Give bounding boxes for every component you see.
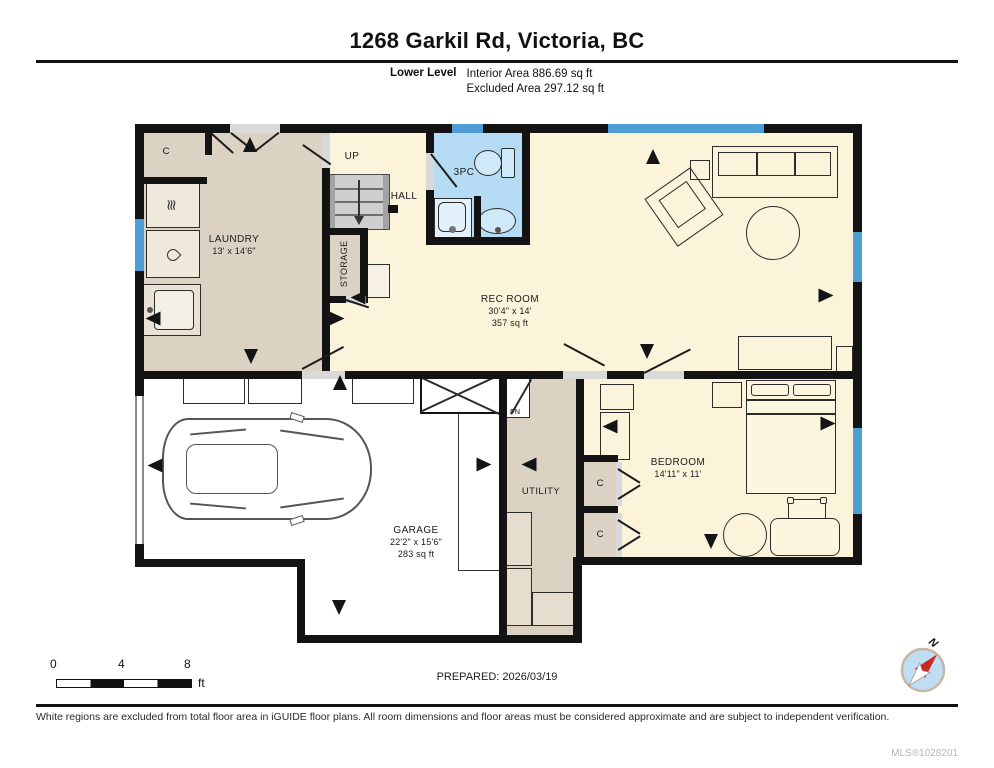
desk bbox=[770, 518, 840, 556]
hall-nook bbox=[366, 264, 390, 298]
pillow bbox=[751, 384, 789, 396]
water-heater bbox=[504, 512, 532, 566]
camera-arrow-icon bbox=[603, 420, 618, 434]
camera-arrow-icon bbox=[522, 458, 537, 472]
wall-segment bbox=[426, 133, 434, 153]
camera-arrow-icon bbox=[332, 600, 346, 615]
garage-shelf bbox=[352, 378, 414, 404]
garage-door bbox=[135, 396, 144, 544]
dryer: ≋ bbox=[146, 182, 200, 228]
utility-label: UTILITY bbox=[505, 486, 577, 498]
shower bbox=[434, 198, 472, 238]
storage-label: STORAGE bbox=[339, 234, 351, 294]
bathroom-sink bbox=[478, 208, 516, 234]
scale-tick-4: 4 bbox=[118, 657, 125, 671]
window bbox=[608, 124, 764, 133]
wall-segment bbox=[322, 296, 346, 303]
door-opening bbox=[644, 371, 684, 379]
wall-segment bbox=[345, 371, 563, 379]
closet-label: C bbox=[592, 478, 608, 489]
wall-segment bbox=[474, 196, 481, 245]
wall-segment bbox=[576, 557, 862, 565]
wall-segment bbox=[576, 506, 618, 513]
wall-segment bbox=[573, 557, 582, 643]
round-table bbox=[746, 206, 800, 260]
compass-icon bbox=[896, 643, 950, 697]
camera-arrow-icon bbox=[646, 149, 660, 164]
window bbox=[135, 219, 144, 271]
wall-segment bbox=[297, 559, 305, 643]
bathroom-label: 3PC bbox=[444, 166, 484, 179]
camera-arrow-icon bbox=[821, 417, 836, 431]
pillow bbox=[793, 384, 831, 396]
sofa bbox=[712, 146, 838, 198]
wall-segment bbox=[576, 371, 584, 559]
prepared-date: PREPARED: 2026/03/19 bbox=[0, 671, 994, 683]
wall-segment bbox=[388, 205, 398, 213]
camera-arrow-icon bbox=[477, 458, 492, 472]
disclaimer-text: White regions are excluded from total fl… bbox=[36, 711, 958, 723]
shower-drain-icon bbox=[449, 226, 456, 233]
furnace: FN bbox=[506, 376, 530, 418]
excluded-region-marker bbox=[420, 374, 502, 414]
hall-label: HALL bbox=[380, 190, 428, 203]
garage-shelf bbox=[183, 378, 245, 404]
door-opening bbox=[230, 124, 280, 133]
window bbox=[853, 232, 862, 282]
camera-arrow-icon bbox=[244, 349, 258, 364]
wall-segment bbox=[297, 635, 582, 643]
wall-segment bbox=[607, 371, 644, 379]
water-heater bbox=[504, 568, 532, 626]
stair-down-arrow-icon bbox=[354, 216, 364, 225]
closet-label: C bbox=[158, 146, 174, 157]
floor-plan-page: 1268 Garkil Rd, Victoria, BC Lower Level… bbox=[0, 0, 994, 768]
car bbox=[162, 418, 372, 520]
wall-segment bbox=[135, 371, 302, 379]
nightstand bbox=[712, 382, 742, 408]
rec-room-label: REC ROOM30'4" x 14'357 sq ft bbox=[430, 293, 590, 329]
camera-arrow-icon bbox=[243, 137, 257, 152]
garage-label: GARAGE22'2" x 15'6"283 sq ft bbox=[336, 524, 496, 560]
footer-divider bbox=[36, 704, 958, 707]
laundry-sink bbox=[143, 284, 201, 336]
garage-floor-lower bbox=[300, 563, 503, 639]
ottoman bbox=[723, 513, 767, 557]
window bbox=[853, 428, 862, 514]
camera-arrow-icon bbox=[640, 344, 654, 359]
up-label: UP bbox=[336, 150, 368, 163]
mls-number: MLS®1028201 bbox=[700, 748, 958, 759]
laundry-label: LAUNDRY13' x 14'6" bbox=[154, 233, 314, 258]
sofa-side-table bbox=[690, 160, 710, 180]
furnace-label: FN bbox=[510, 407, 520, 416]
camera-arrow-icon bbox=[351, 291, 366, 305]
media-cabinet bbox=[738, 336, 832, 370]
wall-segment bbox=[143, 177, 207, 184]
wall-segment bbox=[135, 559, 305, 567]
closet-label: C bbox=[592, 529, 608, 540]
camera-arrow-icon bbox=[333, 375, 347, 390]
camera-arrow-icon bbox=[148, 459, 163, 473]
faucet-icon bbox=[495, 227, 501, 233]
camera-arrow-icon bbox=[330, 312, 345, 326]
camera-arrow-icon bbox=[819, 289, 834, 303]
door-opening bbox=[563, 371, 607, 379]
wall-segment bbox=[322, 168, 330, 371]
scale-tick-0: 0 bbox=[50, 657, 57, 671]
heat-waves-icon: ≋ bbox=[162, 199, 180, 212]
camera-arrow-icon bbox=[146, 312, 161, 326]
garage-shelf bbox=[248, 378, 302, 404]
window bbox=[452, 124, 483, 133]
wall-segment bbox=[205, 133, 212, 155]
scale-tick-8: 8 bbox=[184, 657, 191, 671]
camera-arrow-icon bbox=[704, 534, 718, 549]
wall-segment bbox=[684, 371, 853, 379]
bed bbox=[746, 380, 836, 494]
bedroom-label: BEDROOM14'11" x 11' bbox=[598, 456, 758, 481]
wardrobe bbox=[600, 384, 634, 410]
wall-segment bbox=[522, 133, 530, 245]
utility-bench bbox=[532, 592, 576, 626]
wall-segment bbox=[499, 371, 507, 639]
floor-plan: ≋ FN bbox=[0, 0, 994, 768]
